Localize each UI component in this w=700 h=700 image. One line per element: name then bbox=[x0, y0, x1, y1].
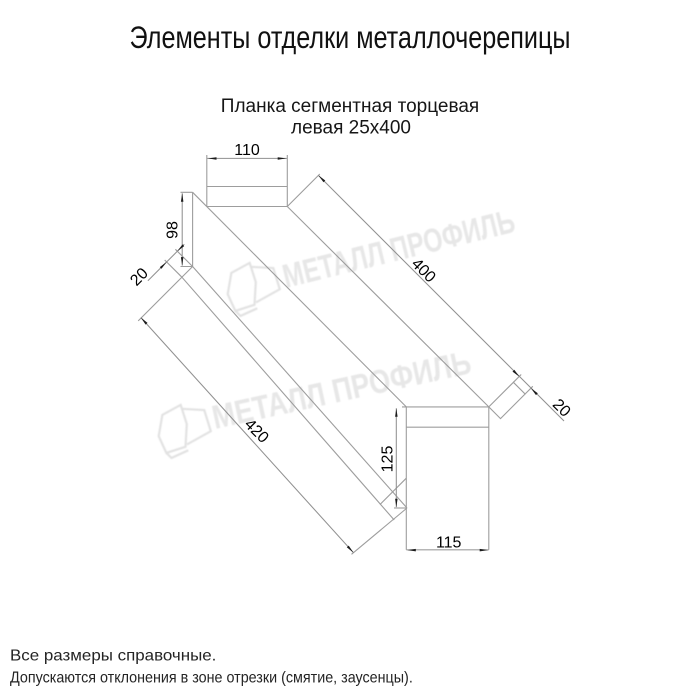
svg-text:115: 115 bbox=[436, 535, 462, 552]
svg-text:левая 25х400: левая 25х400 bbox=[291, 118, 411, 139]
svg-text:МЕТАЛЛ ПРОФИЛЬ: МЕТАЛЛ ПРОФИЛЬ bbox=[279, 204, 518, 296]
svg-text:Планка сегментная торцевая: Планка сегментная торцевая bbox=[221, 96, 479, 117]
svg-text:20: 20 bbox=[127, 265, 152, 290]
svg-text:110: 110 bbox=[234, 142, 260, 159]
svg-text:Допускаются отклонения в зоне: Допускаются отклонения в зоне отрезки (с… bbox=[10, 669, 413, 687]
svg-text:Элементы отделки металлочерепи: Элементы отделки металлочерепицы bbox=[129, 20, 570, 55]
svg-text:125: 125 bbox=[380, 446, 397, 473]
svg-text:20: 20 bbox=[549, 396, 574, 421]
svg-text:Все размеры справочные.: Все размеры справочные. bbox=[10, 646, 216, 665]
svg-text:98: 98 bbox=[165, 221, 182, 239]
